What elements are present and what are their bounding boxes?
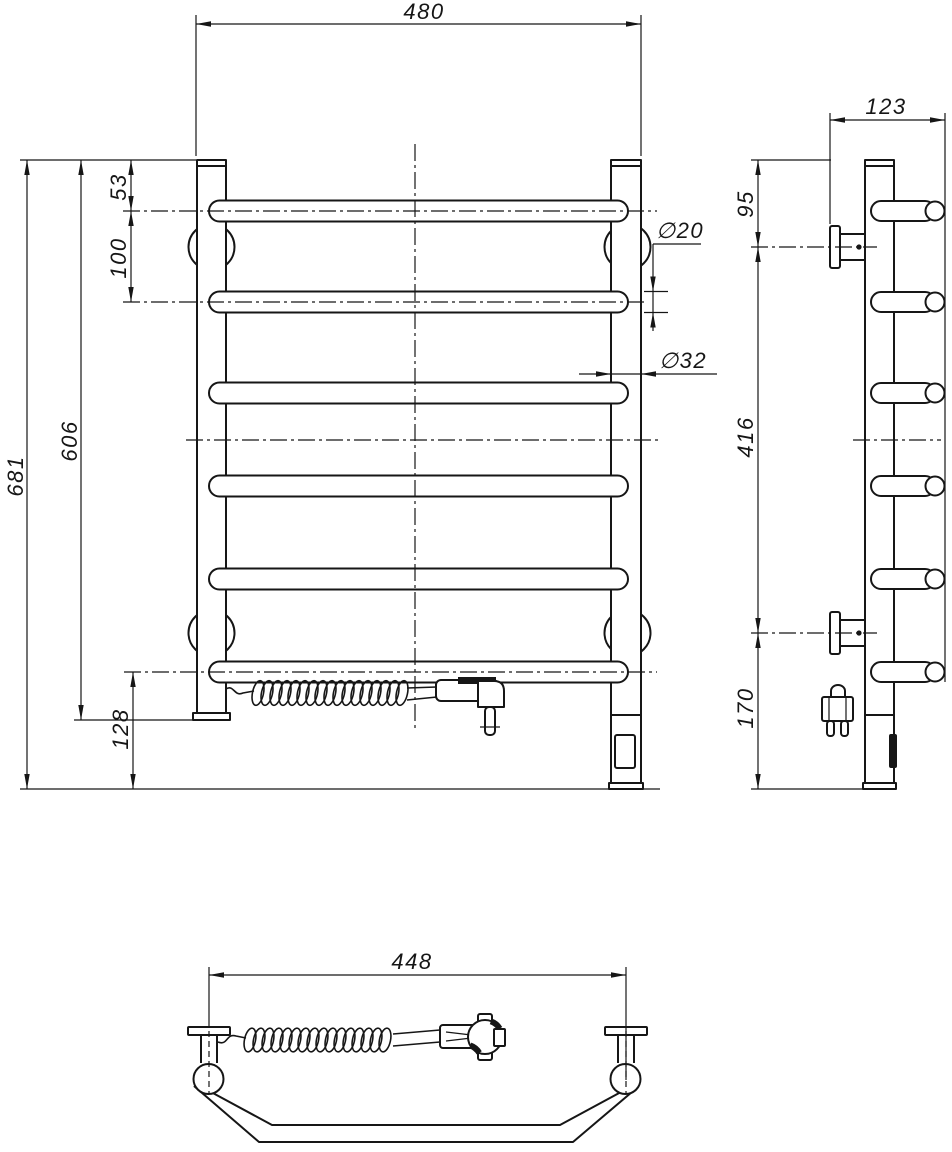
front-bars (209, 201, 628, 683)
bar-3 (209, 383, 628, 404)
dim-overall-height: 681 (3, 160, 30, 789)
dim-label-480: 480 (403, 0, 444, 24)
drawing-sheet: 480 681 606 53 (0, 0, 952, 1152)
front-power-cord (226, 677, 504, 735)
dim-label-416: 416 (733, 416, 758, 457)
cord-coil-icon (250, 680, 410, 707)
dim-mount-width: 448 (209, 949, 626, 1080)
plug-icon-bottom (440, 1014, 505, 1060)
dim-bottom-offset: 128 (108, 672, 136, 789)
dim-label-95: 95 (733, 190, 758, 217)
dim-rail-height: 606 (57, 160, 84, 720)
plug-icon-front (436, 677, 504, 735)
dim-top-offset: 53 (106, 160, 134, 211)
dim-label-53: 53 (106, 173, 131, 200)
dim-label-123: 123 (865, 94, 906, 119)
cord-coil-icon-bottom (242, 1027, 393, 1053)
dim-bar-pitch: 100 (106, 211, 134, 302)
bottom-bar (194, 1086, 639, 1142)
dim-rail-diameter: ∅32 (579, 348, 717, 377)
side-view (751, 160, 945, 789)
side-rail-tube (863, 160, 896, 789)
dim-top-to-bracket: 95 (733, 160, 831, 247)
bottom-power-cord (218, 1014, 505, 1060)
power-switch-front (615, 735, 635, 768)
dim-bar-diameter: ∅20 (644, 218, 704, 331)
dimensions: 480 681 606 53 (3, 0, 945, 1080)
towel-rail-technical-drawing: 480 681 606 53 (0, 0, 952, 1152)
dim-overall-width: 480 (196, 0, 641, 156)
dim-label-448: 448 (391, 949, 432, 974)
bottom-view (188, 1014, 647, 1142)
bottom-left-rail-end (194, 1064, 224, 1094)
bar-4 (209, 476, 628, 497)
dim-label-681: 681 (3, 455, 28, 496)
front-view (123, 144, 658, 789)
dim-bracket-pitch: 416 (733, 247, 761, 633)
dim-label-170: 170 (733, 687, 758, 728)
dim-label-100: 100 (106, 237, 131, 278)
dim-label-128: 128 (108, 708, 133, 749)
dim-label-d32: ∅32 (659, 348, 707, 373)
plug-icon-side (822, 685, 853, 736)
dim-label-606: 606 (57, 420, 82, 461)
dim-label-d20: ∅20 (656, 218, 704, 243)
power-switch-side (889, 734, 897, 768)
bar-5 (209, 569, 628, 590)
